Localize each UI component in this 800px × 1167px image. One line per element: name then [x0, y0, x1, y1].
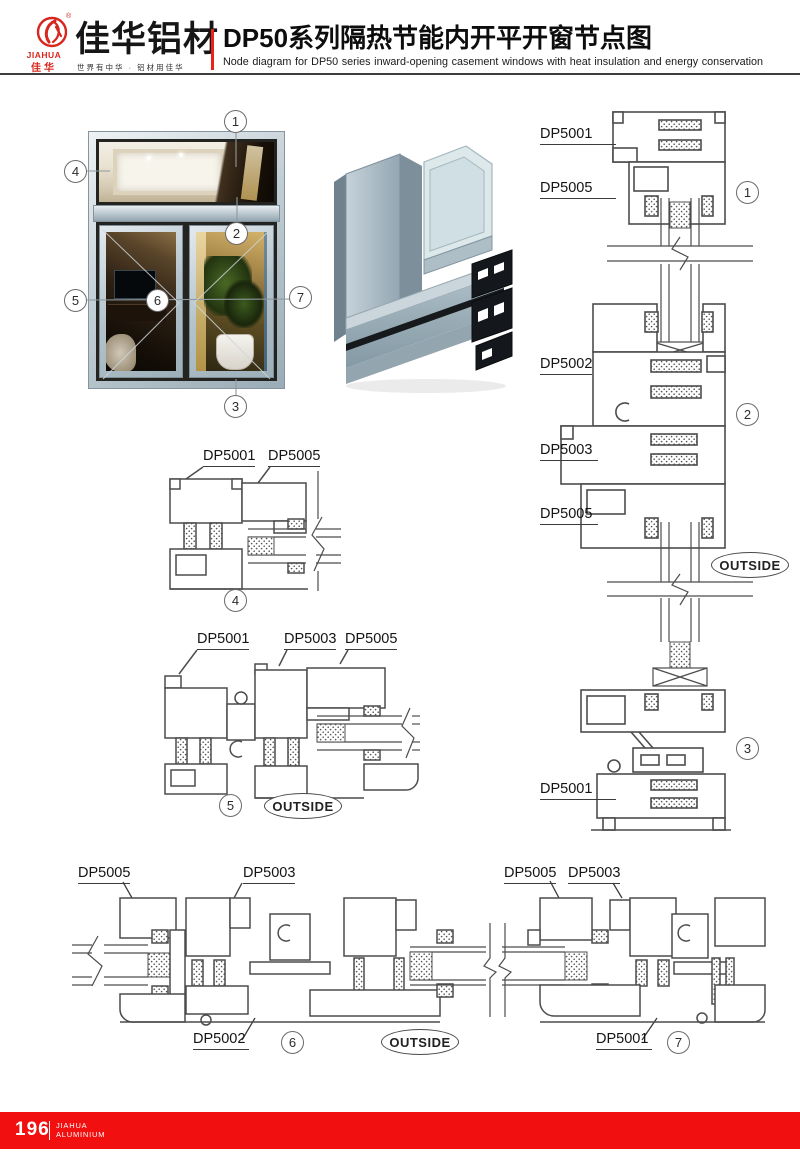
profile-label: DP5003	[284, 631, 336, 650]
company-name: 佳华铝材	[75, 22, 219, 57]
outside-label: OUTSIDE	[711, 552, 789, 578]
profile-label: DP5005	[540, 506, 598, 525]
vertical-section-diagram	[533, 98, 795, 836]
callout-2: 2	[225, 222, 248, 245]
registered-mark: ®	[66, 13, 71, 20]
header-divider	[211, 29, 214, 70]
detail-section-4-diagram	[148, 465, 358, 595]
logo-brand-cn: 佳华	[22, 59, 66, 74]
section-callout-1: 1	[736, 181, 759, 204]
section-callout-7: 7	[667, 1031, 690, 1054]
footer-divider	[49, 1121, 50, 1140]
profile-label: DP5005	[268, 448, 320, 467]
profile-label: DP5001	[596, 1031, 652, 1050]
footer-bar	[0, 1112, 800, 1149]
profile-label: DP5003	[243, 865, 295, 884]
profile-label: DP5005	[345, 631, 397, 650]
callout-4: 4	[64, 160, 87, 183]
outside-label: OUTSIDE	[264, 793, 342, 819]
section-callout-3: 3	[736, 737, 759, 760]
header-rule	[0, 73, 800, 75]
callout-5: 5	[64, 289, 87, 312]
callout-7: 7	[289, 286, 312, 309]
profile-label: DP5005	[504, 865, 556, 884]
company-slogan: 世界有中华 · 铝材用佳华	[77, 62, 185, 73]
section-callout-5: 5	[219, 794, 242, 817]
callout-6: 6	[146, 289, 169, 312]
overview-leader-lines	[56, 103, 322, 431]
outside-label: OUTSIDE	[381, 1029, 459, 1055]
corner-profile-render	[326, 132, 526, 398]
callout-3: 3	[224, 395, 247, 418]
detail-section-5-diagram	[152, 646, 424, 814]
section-callout-2: 2	[736, 403, 759, 426]
page-number: 196	[15, 1119, 50, 1141]
profile-label: DP5003	[568, 865, 620, 884]
jiahua-logo-icon	[36, 16, 68, 48]
footer-brand-en: JIAHUA	[56, 1121, 87, 1130]
profile-label: DP5001	[540, 126, 616, 145]
profile-label: DP5001	[203, 448, 255, 467]
profile-label: DP5001	[197, 631, 249, 650]
section-callout-4: 4	[224, 589, 247, 612]
footer-brand-en2: ALUMINIUM	[56, 1130, 105, 1139]
section-callout-6: 6	[281, 1031, 304, 1054]
profile-label: DP5003	[540, 442, 598, 461]
profile-label: DP5001	[540, 781, 616, 800]
callout-1: 1	[224, 110, 247, 133]
profile-label: DP5005	[78, 865, 130, 884]
page-title: DP50系列隔热节能内开平开窗节点图	[223, 24, 652, 53]
page-subtitle: Node diagram for DP50 series inward-open…	[223, 56, 763, 69]
profile-label: DP5002	[540, 356, 592, 375]
profile-label: DP5005	[540, 180, 616, 199]
profile-label: DP5002	[193, 1031, 249, 1050]
